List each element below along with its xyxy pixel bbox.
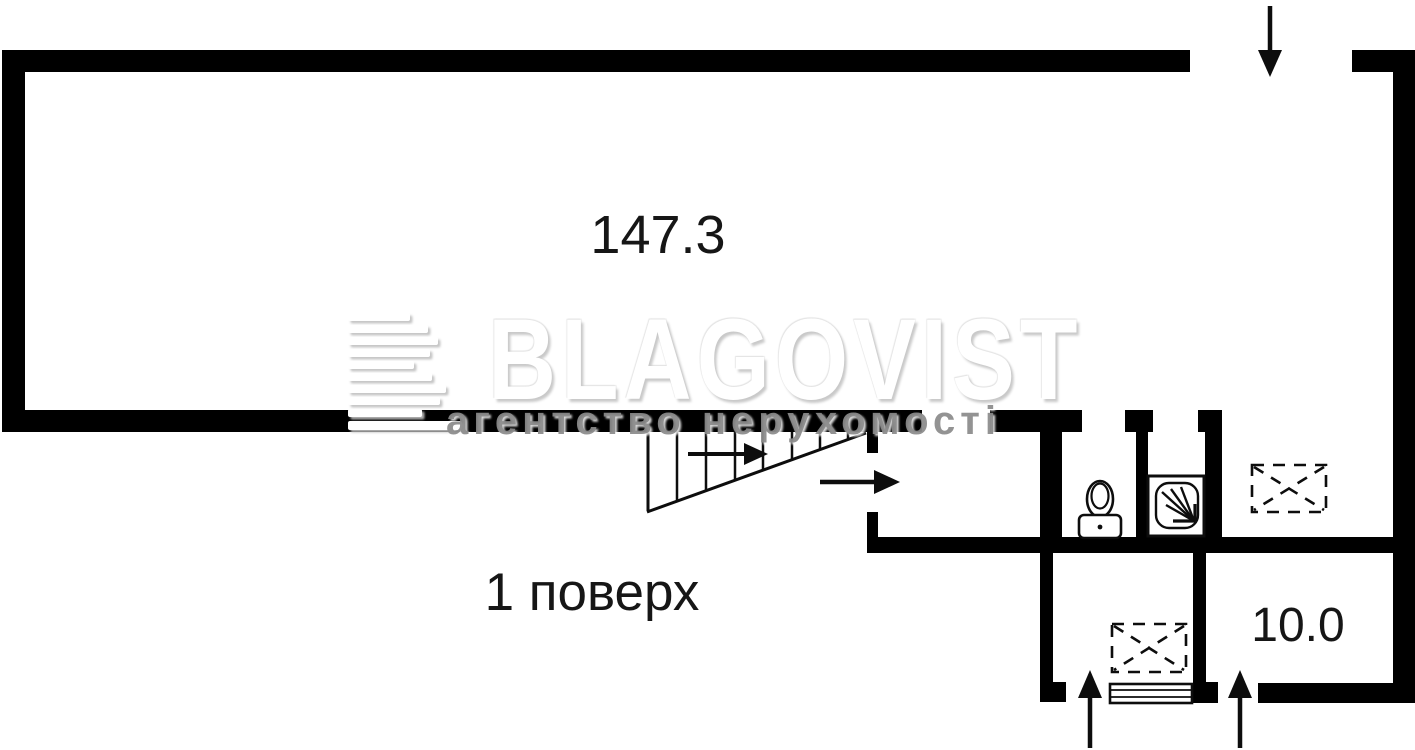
toilet-icon — [1079, 481, 1121, 538]
toilet-tank-dot — [1098, 525, 1103, 530]
floor-plan-drawing: 147.3 1 поверх 10.0 — [0, 0, 1415, 750]
wall-lowermid-foot — [1206, 682, 1218, 703]
wall-shower-right — [1205, 432, 1222, 537]
wall-long-horizontal — [867, 537, 1415, 553]
toilet-bowl-inner — [1092, 484, 1109, 509]
wall-shower-stub — [1198, 410, 1222, 432]
stairs-break-diagonal — [647, 433, 866, 512]
stairs-direction-arrow-icon — [688, 443, 768, 465]
wall-lowerright-bottom — [1258, 683, 1415, 703]
wall-lowermid — [1193, 553, 1206, 703]
wall-corridor-jamb-top — [867, 432, 878, 453]
wall-mid-vertical — [1040, 432, 1062, 553]
wall-top-left — [2, 50, 1190, 72]
wall-toilet-stub — [1125, 410, 1153, 432]
stairs-run-icon — [647, 432, 866, 512]
wall-hall-bottom-a — [2, 410, 922, 432]
blocked-opening-x-icon-lower — [1112, 624, 1186, 672]
lower-right-room-area-label: 10.0 — [1251, 599, 1344, 652]
walls — [2, 50, 1415, 703]
floor-plan-canvas: 147.3 1 поверх 10.0 BLAGOVIST агентство … — [0, 0, 1415, 750]
window-sill-icon — [1110, 684, 1192, 703]
floor-label: 1 поверх — [485, 563, 700, 622]
shower-icon — [1148, 476, 1204, 536]
blocked-opening-x-icon-upper — [1252, 465, 1326, 512]
wall-lowerleft-foot — [1053, 682, 1066, 702]
main-hall-area-label: 147.3 — [590, 205, 725, 265]
corridor-right-arrow-icon — [820, 470, 900, 494]
wall-right — [1393, 50, 1415, 703]
entrance-up-arrow-right-icon — [1228, 670, 1252, 748]
wall-toilet-divider — [1136, 432, 1148, 537]
entrance-up-arrow-left-icon — [1078, 670, 1102, 748]
wall-hall-bottom-b — [990, 410, 1082, 432]
wall-lowerleft-room — [1040, 553, 1053, 702]
entrance-down-arrow-icon — [1258, 6, 1282, 77]
wall-left — [2, 50, 25, 432]
